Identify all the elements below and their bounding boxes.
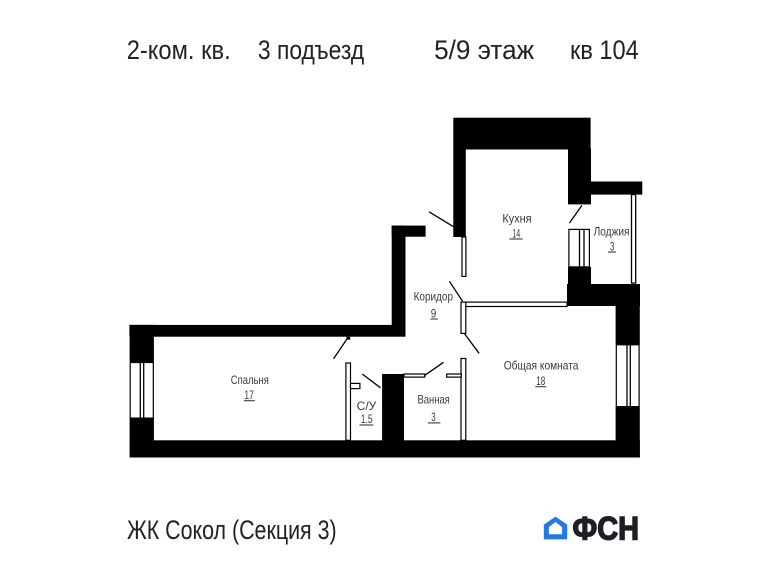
svg-text:С/У: С/У: [357, 399, 377, 413]
svg-text:18: 18: [536, 374, 545, 388]
svg-text:кв 104: кв 104: [570, 35, 639, 65]
svg-text:Коридор: Коридор: [414, 290, 454, 304]
svg-text:17: 17: [244, 388, 253, 402]
svg-text:1.5: 1.5: [361, 412, 373, 426]
svg-text:3: 3: [431, 410, 436, 424]
svg-text:Лоджия: Лоджия: [594, 224, 630, 238]
svg-text:5/9 этаж: 5/9 этаж: [434, 35, 534, 65]
svg-text:3: 3: [610, 240, 615, 254]
svg-text:Кухня: Кухня: [502, 212, 531, 226]
svg-text:3 подъезд: 3 подъезд: [258, 35, 365, 65]
svg-text:ФСН: ФСН: [573, 510, 640, 546]
svg-text:14: 14: [512, 227, 520, 241]
svg-text:Ванная: Ванная: [418, 392, 450, 406]
svg-text:ЖК Сокол (Секция 3): ЖК Сокол (Секция 3): [127, 515, 337, 545]
svg-text:2-ком. кв.: 2-ком. кв.: [127, 35, 231, 65]
svg-text:9: 9: [431, 307, 437, 321]
svg-text:Спальня: Спальня: [231, 373, 269, 387]
svg-text:Общая комната: Общая комната: [504, 359, 579, 373]
